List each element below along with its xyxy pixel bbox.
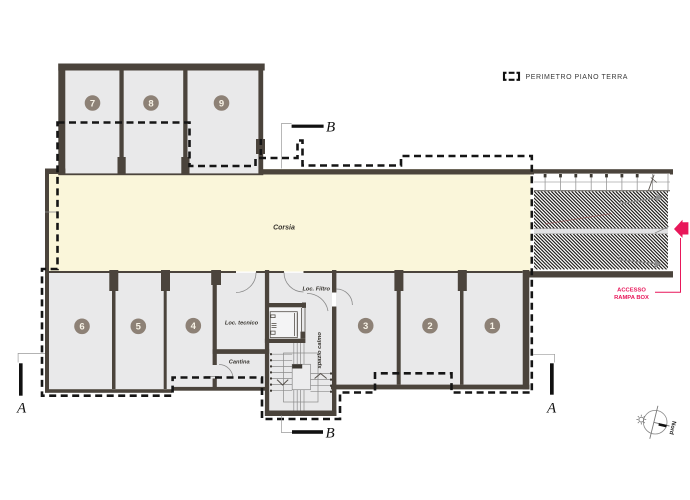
svg-text:ACCESSO: ACCESSO — [617, 288, 646, 294]
svg-text:2: 2 — [427, 321, 432, 332]
svg-text:Loc. Filtro: Loc. Filtro — [302, 286, 330, 292]
svg-text:B: B — [326, 426, 335, 442]
svg-text:PERIMETRO PIANO TERRA: PERIMETRO PIANO TERRA — [526, 74, 628, 81]
svg-text:7: 7 — [90, 98, 95, 109]
svg-text:A: A — [16, 401, 27, 417]
svg-text:1: 1 — [490, 321, 496, 332]
svg-text:Corsia: Corsia — [273, 225, 295, 232]
svg-text:RAMPA BOX: RAMPA BOX — [614, 295, 649, 301]
svg-text:4: 4 — [191, 321, 197, 332]
svg-text:8: 8 — [148, 98, 153, 109]
svg-text:A: A — [546, 401, 557, 417]
svg-text:6: 6 — [79, 322, 84, 333]
svg-text:5: 5 — [136, 322, 142, 333]
svg-text:Cantina: Cantina — [229, 360, 250, 366]
svg-text:3: 3 — [363, 321, 368, 332]
svg-text:B: B — [326, 120, 335, 136]
svg-text:spazio calmo: spazio calmo — [317, 332, 323, 369]
svg-text:Loc. tecnico: Loc. tecnico — [225, 320, 259, 326]
svg-text:9: 9 — [219, 98, 224, 109]
